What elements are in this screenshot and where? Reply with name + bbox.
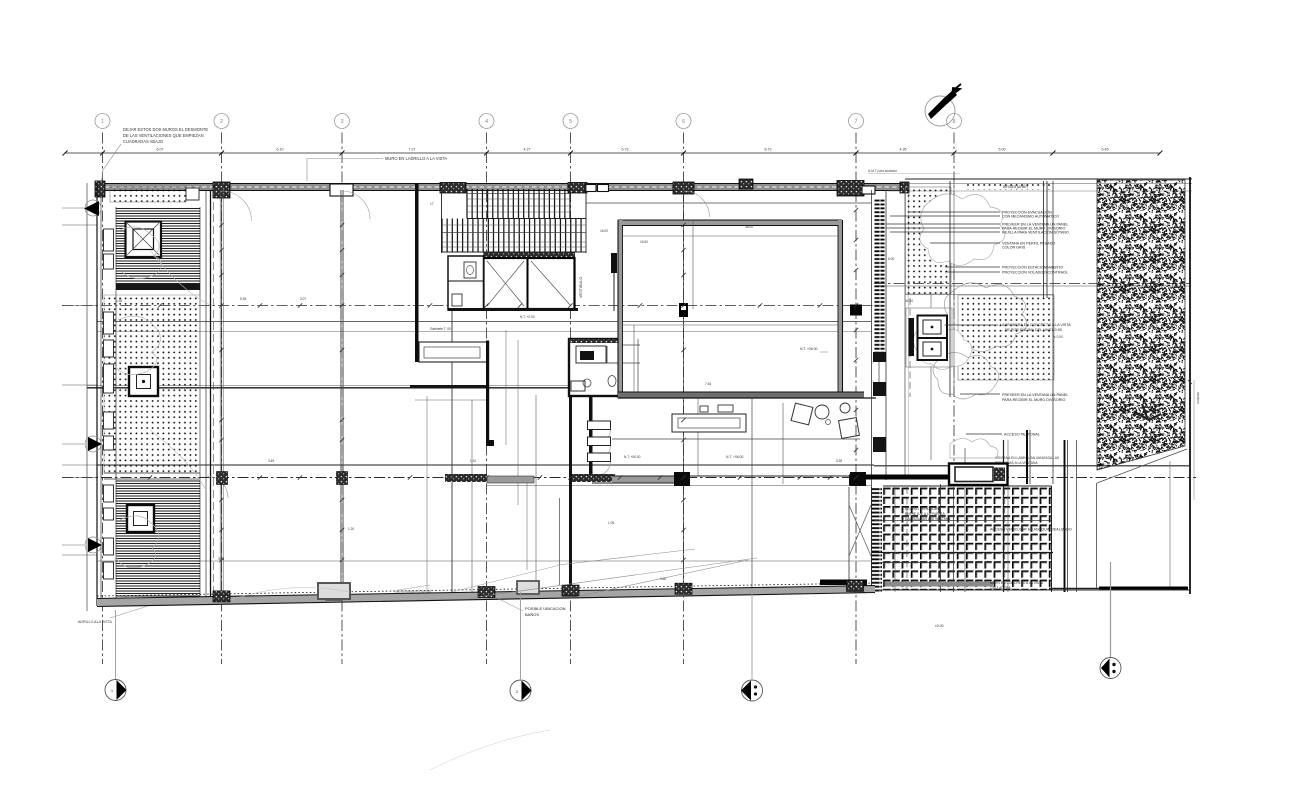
- svg-text:6.00: 6.00: [888, 257, 894, 261]
- svg-text:VESTIBULO: VESTIBULO: [579, 277, 583, 298]
- svg-text:DEJAR ESTOS DOS MUROS EL DESMO: DEJAR ESTOS DOS MUROS EL DESMONTE: [123, 127, 208, 132]
- svg-text:7.27: 7.27: [409, 148, 416, 152]
- svg-text:4.95: 4.95: [900, 148, 907, 152]
- svg-text:→ DE POR ENCIMA DEL NIVEL 0.00: → DE POR ENCIMA DEL NIVEL 0.00: [1000, 328, 1062, 332]
- svg-text:terraza jardín: terraza jardín: [1003, 184, 1028, 189]
- svg-text:Gabinete T. 00: Gabinete T. 00: [430, 327, 451, 331]
- svg-text:0.60: 0.60: [660, 577, 666, 581]
- svg-text:6.07: 6.07: [157, 148, 164, 152]
- svg-text:8.73: 8.73: [765, 148, 772, 152]
- svg-text:COLOR GRIS: COLOR GRIS: [1002, 246, 1026, 250]
- svg-text:N.T. +06.00: N.T. +06.00: [726, 455, 744, 459]
- svg-text:CALZADURAS AJU VENTANA: CALZADURAS AJU VENTANA: [905, 517, 951, 521]
- svg-text:7: 7: [854, 119, 857, 125]
- svg-text:POSIBLE UBICACION: POSIBLE UBICACION: [525, 606, 566, 611]
- svg-text:16.00: 16.00: [600, 229, 608, 233]
- svg-text:p.35: p.35: [116, 299, 122, 303]
- svg-text:34.00: 34.00: [905, 299, 913, 303]
- svg-text:3: 3: [340, 119, 343, 125]
- svg-text:N.M.T para acabado: N.M.T para acabado: [868, 169, 897, 173]
- svg-text:6.10: 6.10: [277, 148, 284, 152]
- svg-text:ACCESO VEHICULAR EN ADOQUIN RE: ACCESO VEHICULAR EN ADOQUIN REALIZADO: [990, 528, 1072, 532]
- svg-text:N.T. +0.00: N.T. +0.00: [520, 315, 535, 319]
- svg-text:7.64: 7.64: [705, 382, 711, 386]
- svg-text:4: 4: [485, 119, 488, 125]
- svg-text:36.00: 36.00: [745, 225, 753, 229]
- svg-text:BAÑOS: BAÑOS: [525, 612, 539, 617]
- svg-text:1.20: 1.20: [348, 527, 354, 531]
- svg-text:5.45: 5.45: [1102, 148, 1109, 152]
- svg-text:16.50: 16.50: [640, 240, 648, 244]
- svg-text:6: 6: [682, 119, 685, 125]
- svg-text:ACCESO PEATONAL: ACCESO PEATONAL: [1004, 433, 1040, 437]
- svg-text:1: 1: [101, 119, 104, 125]
- svg-text:5.00: 5.00: [999, 148, 1006, 152]
- svg-text:5.73: 5.73: [622, 148, 629, 152]
- svg-text:17: 17: [430, 202, 434, 206]
- svg-text:PARA RECIBIR EL MURO DIVISORI: PARA RECIBIR EL MURO DIVISORIO: [1002, 398, 1065, 402]
- svg-text:N.T. +06.00: N.T. +06.00: [624, 455, 641, 459]
- svg-text:5: 5: [569, 119, 572, 125]
- svg-text:CUADRADAS ABAJO: CUADRADAS ABAJO: [123, 139, 163, 144]
- svg-text:5.35: 5.35: [240, 297, 246, 301]
- svg-text:PROYECCIÓN VOLADIZO CONTRAOL: PROYECCIÓN VOLADIZO CONTRAOL: [1002, 270, 1068, 275]
- svg-text:ACCESO VEHICULAR: ACCESO VEHICULAR: [905, 507, 939, 511]
- svg-text:PROYECCIÓN ESTACIONAMIENTO: PROYECCIÓN ESTACIONAMIENTO: [1002, 265, 1063, 270]
- svg-text:3.07: 3.07: [300, 297, 306, 301]
- svg-text:MURO EN CONCRETO A LA VISTA: MURO EN CONCRETO A LA VISTA: [990, 581, 1044, 585]
- svg-text:PREVEER EN LA VENTANA UN PANEL: PREVEER EN LA VENTANA UN PANEL: [1002, 393, 1068, 397]
- svg-text:ENTRE EJE A LA PUERTA: ENTRE EJE A LA PUERTA: [905, 512, 945, 516]
- svg-text:piso en adoquin a la vista: piso en adoquin a la vista: [395, 590, 431, 594]
- svg-text:8: 8: [952, 119, 955, 125]
- svg-text:2: 2: [220, 119, 223, 125]
- svg-text:1.05: 1.05: [608, 521, 614, 525]
- svg-text:LADRONERA EN CONCRETO A LA VIS: LADRONERA EN CONCRETO A LA VISTA: [1000, 323, 1071, 327]
- svg-text:5.35: 5.35: [836, 459, 842, 463]
- svg-text:3.45: 3.45: [268, 459, 274, 463]
- svg-text:4.27: 4.27: [524, 148, 531, 152]
- svg-text:REJILLA PARA VENTILACIÓN SÓTAN: REJILLA PARA VENTILACIÓN SÓTANO: [1002, 230, 1069, 235]
- svg-text:N.T. +06.00: N.T. +06.00: [800, 347, 818, 351]
- svg-text:sendero: sendero: [1196, 392, 1200, 404]
- svg-text:± 0.00: ± 0.00: [1054, 335, 1063, 339]
- svg-text:ADRILLO ALA VISTA: ADRILLO ALA VISTA: [78, 620, 112, 624]
- svg-text:CON MECANISMO AUTOMATICO: CON MECANISMO AUTOMATICO: [1002, 215, 1059, 219]
- svg-text:±0.00: ±0.00: [935, 624, 944, 628]
- svg-text:1.10: 1.10: [470, 459, 476, 463]
- svg-text:DE LAS VENTILACIONES QUE EMPI: DE LAS VENTILACIONES QUE EMPIEZAN: [123, 133, 204, 138]
- svg-text:MURO EN LADRILLO A LA VISTA: MURO EN LADRILLO A LA VISTA: [385, 156, 448, 161]
- svg-text:CALZ ADERA: CALZ ADERA: [990, 586, 1011, 590]
